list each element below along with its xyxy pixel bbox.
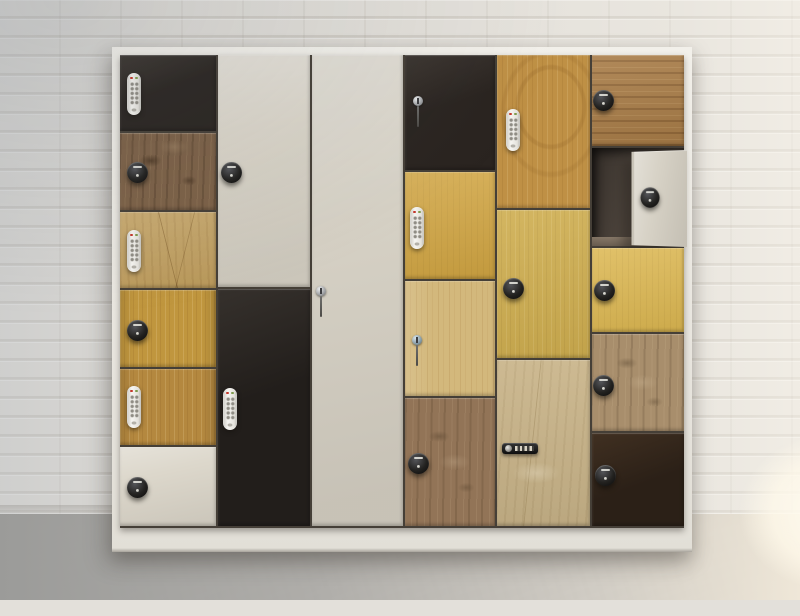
locker-door xyxy=(405,172,495,279)
open-locker-door xyxy=(632,150,687,247)
locker-door xyxy=(120,369,216,445)
keypad-lock xyxy=(127,230,141,272)
knob-lock xyxy=(127,477,148,498)
locker-door xyxy=(218,55,310,287)
knob-lock xyxy=(593,375,614,396)
locker-door xyxy=(405,281,495,396)
locker-door xyxy=(592,248,684,332)
locker-door xyxy=(120,290,216,367)
locker-door xyxy=(497,55,590,208)
key-lock xyxy=(316,286,326,296)
knob-lock xyxy=(127,162,148,183)
keypad-lock xyxy=(127,73,141,115)
locker-door xyxy=(497,210,590,358)
knob-lock xyxy=(594,280,615,301)
keypad-lock xyxy=(506,109,520,151)
cabinet-plinth xyxy=(112,548,692,552)
keypad-lock xyxy=(410,207,424,249)
keypad-lock xyxy=(127,386,141,428)
locker-doors-layer xyxy=(120,55,684,528)
locker-door xyxy=(592,55,684,146)
wall-floor-shadow xyxy=(0,505,112,515)
locker-door xyxy=(497,360,590,526)
locker-door xyxy=(405,398,495,526)
locker-door xyxy=(120,212,216,288)
knob-lock xyxy=(127,320,148,341)
knob-lock xyxy=(503,278,524,299)
keypad-lock xyxy=(223,388,237,430)
combo-lock xyxy=(502,443,538,454)
locker-door xyxy=(120,55,216,131)
locker-door xyxy=(218,289,310,526)
locker-door xyxy=(312,55,403,526)
locker-door xyxy=(120,447,216,526)
locker-cabinet xyxy=(112,47,692,552)
knob-lock xyxy=(593,90,614,111)
knob-lock xyxy=(408,453,429,474)
key-lock xyxy=(413,96,423,106)
locker-door xyxy=(592,433,684,526)
key-lock xyxy=(412,335,422,345)
knob-lock xyxy=(595,465,616,486)
locker-door xyxy=(405,55,495,170)
knob-lock xyxy=(221,162,242,183)
locker-door xyxy=(120,133,216,210)
locker-door xyxy=(592,334,684,431)
knob-lock xyxy=(640,187,659,208)
